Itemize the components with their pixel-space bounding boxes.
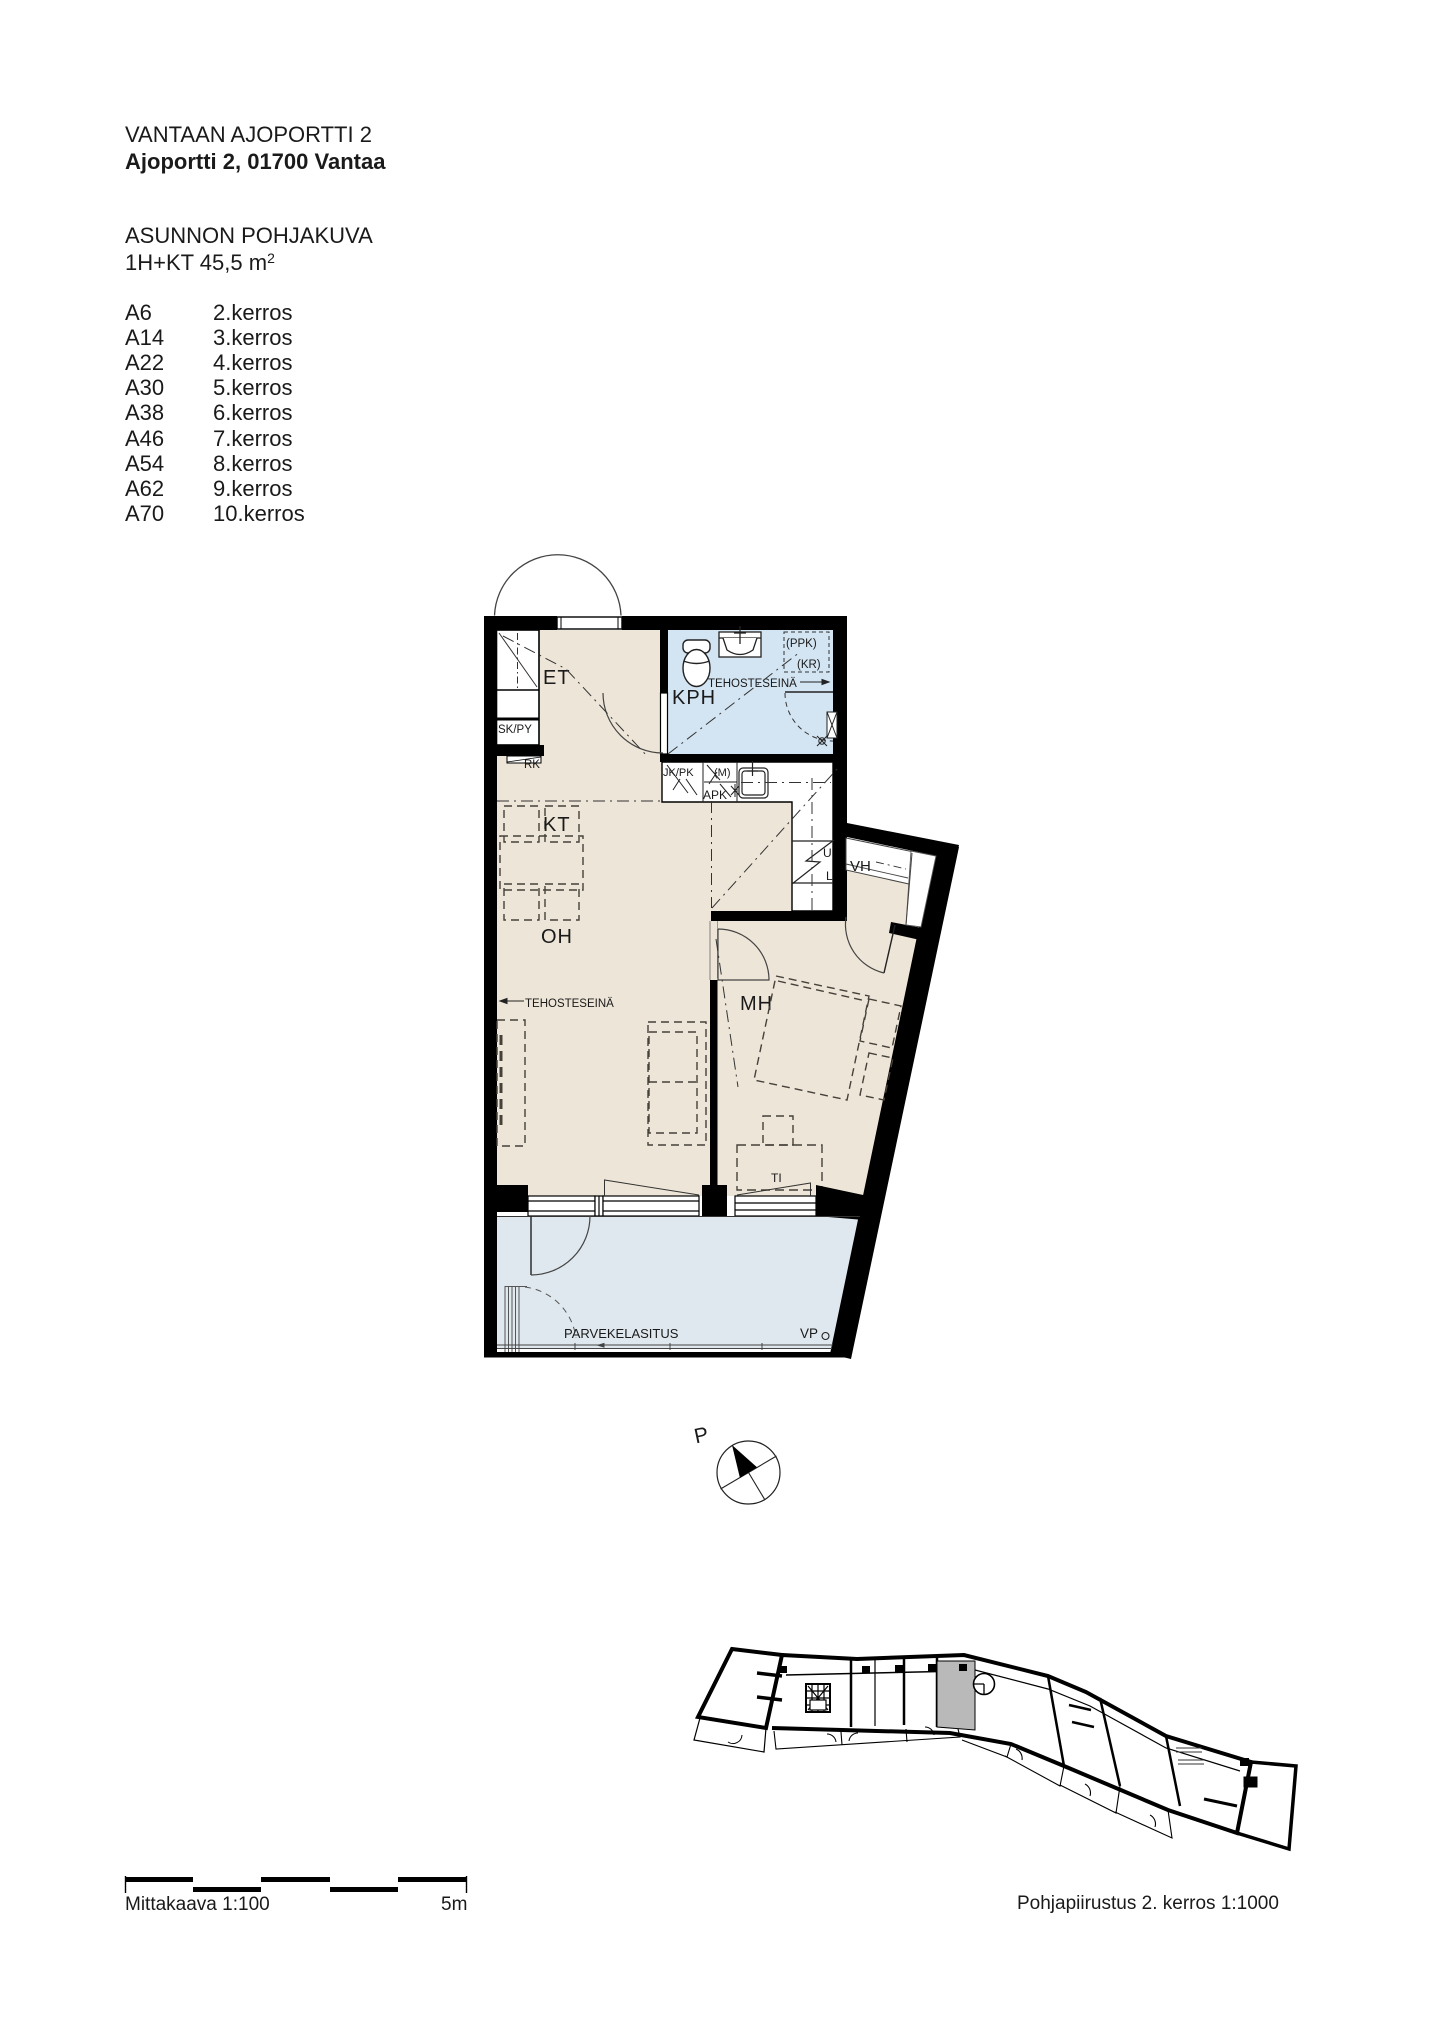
svg-text:A62: A62	[125, 476, 164, 501]
svg-text:5m: 5m	[441, 1894, 467, 1915]
svg-text:A30: A30	[125, 375, 164, 400]
svg-text:4.kerros: 4.kerros	[213, 350, 292, 375]
svg-text:A38: A38	[125, 400, 164, 425]
svg-text:L: L	[826, 869, 833, 883]
svg-text:SK/PY: SK/PY	[498, 724, 532, 736]
svg-text:3.kerros: 3.kerros	[213, 325, 292, 350]
svg-text:P: P	[692, 1423, 710, 1448]
svg-text:(PPK): (PPK)	[786, 638, 817, 650]
svg-text:9.kerros: 9.kerros	[213, 476, 292, 501]
svg-text:Mittakaava 1:100: Mittakaava 1:100	[125, 1894, 270, 1915]
svg-text:10.kerros: 10.kerros	[213, 501, 305, 526]
svg-text:OH: OH	[541, 926, 573, 948]
svg-text:A14: A14	[125, 325, 164, 350]
svg-text:Ajoportti 2, 01700 Vantaa: Ajoportti 2, 01700 Vantaa	[125, 149, 386, 174]
svg-text:APK: APK	[703, 788, 727, 802]
svg-text:8.kerros: 8.kerros	[213, 451, 292, 476]
svg-text:PARVEKELASITUS: PARVEKELASITUS	[564, 1326, 679, 1341]
svg-text:7.kerros: 7.kerros	[213, 426, 292, 451]
svg-text:2.kerros: 2.kerros	[213, 300, 292, 325]
svg-text:U: U	[823, 846, 832, 860]
svg-text:RK: RK	[524, 759, 540, 771]
svg-text:TEHOSTESEINÄ: TEHOSTESEINÄ	[525, 998, 614, 1010]
svg-text:VANTAAN AJOPORTTI 2: VANTAAN AJOPORTTI 2	[125, 122, 372, 147]
svg-text:A70: A70	[125, 501, 164, 526]
svg-text:A6: A6	[125, 300, 152, 325]
svg-text:A46: A46	[125, 426, 164, 451]
svg-text:A22: A22	[125, 350, 164, 375]
svg-text:ET: ET	[543, 667, 571, 689]
svg-text:1H+KT 45,5 m2: 1H+KT 45,5 m2	[125, 250, 275, 275]
svg-text:JK/PK: JK/PK	[663, 767, 694, 779]
svg-text:A54: A54	[125, 451, 164, 476]
svg-text:KT: KT	[543, 814, 571, 836]
svg-text:(KR): (KR)	[797, 659, 821, 671]
svg-text:5.kerros: 5.kerros	[213, 375, 292, 400]
svg-text:Pohjapiirustus 2. kerros 1:100: Pohjapiirustus 2. kerros 1:1000	[1017, 1893, 1279, 1914]
svg-text:ASUNNON POHJAKUVA: ASUNNON POHJAKUVA	[125, 223, 373, 248]
svg-text:6.kerros: 6.kerros	[213, 400, 292, 425]
svg-text:(M): (M)	[714, 767, 731, 779]
svg-text:VP: VP	[800, 1326, 818, 1341]
svg-text:TI: TI	[771, 1171, 782, 1185]
svg-text:KPH: KPH	[672, 687, 716, 709]
svg-text:VH: VH	[850, 858, 871, 875]
